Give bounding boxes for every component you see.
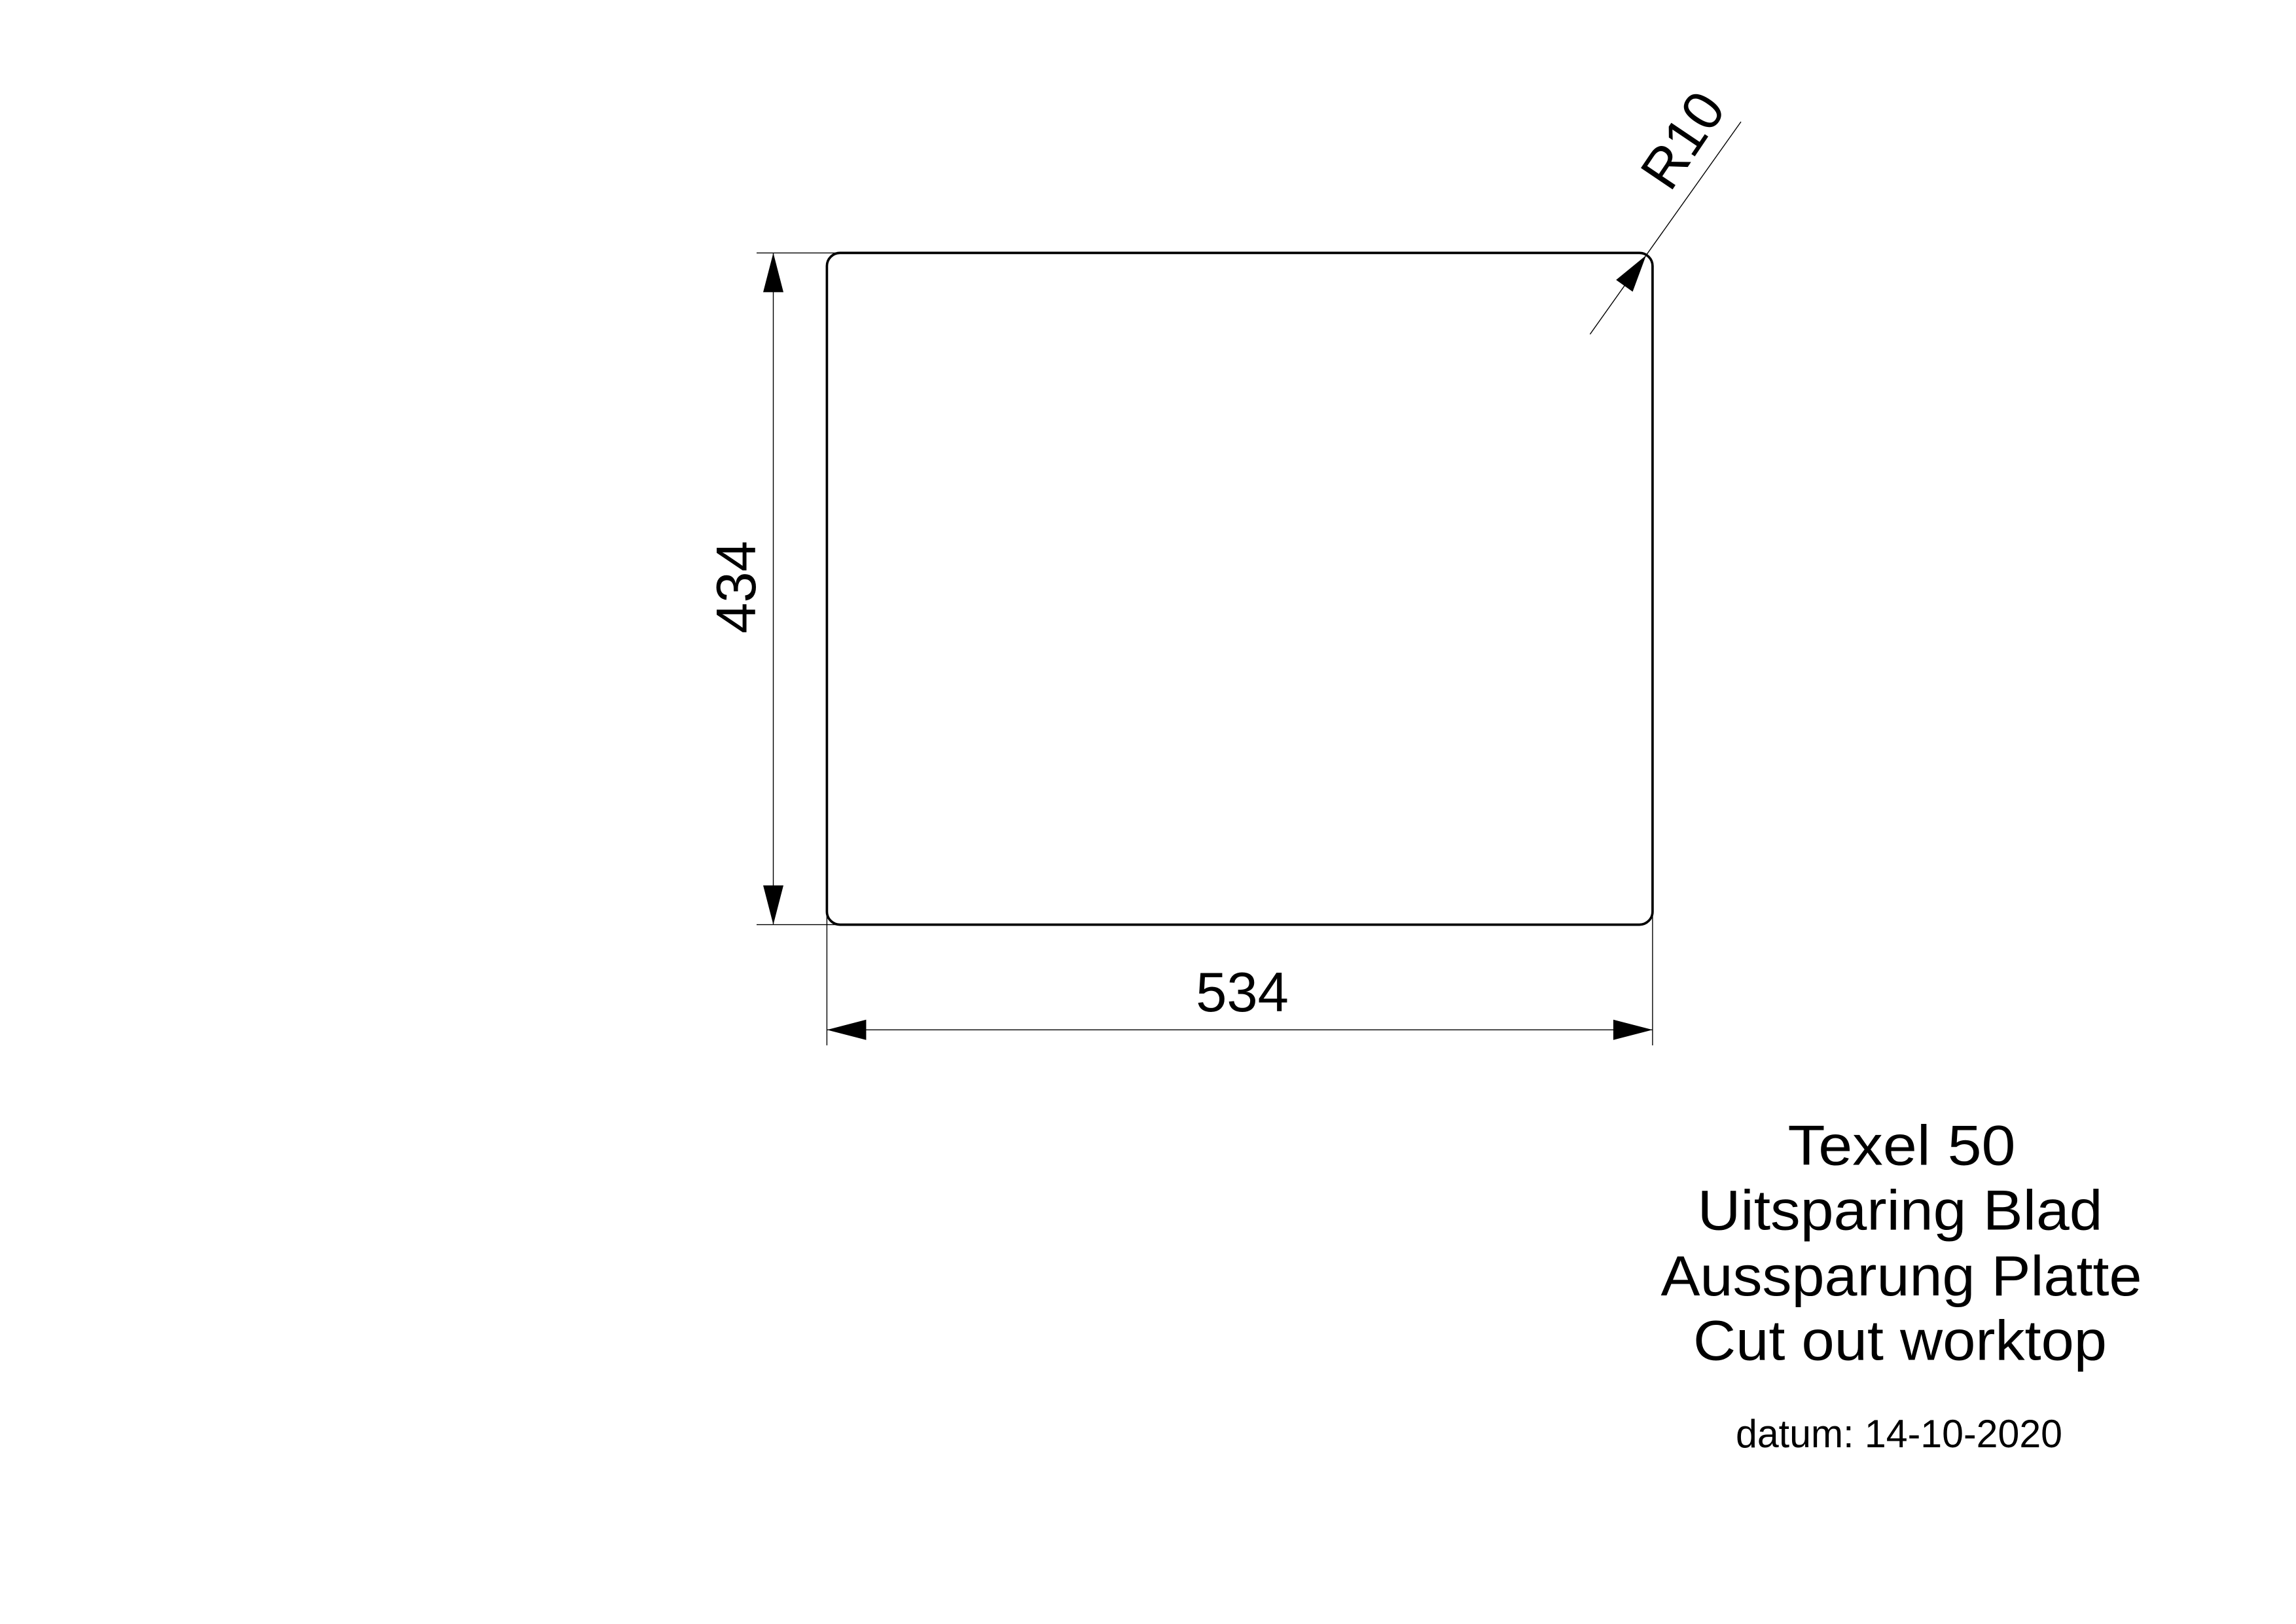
svg-text:Uitsparing Blad: Uitsparing Blad [1698,1180,2103,1242]
svg-text:534: 534 [1196,962,1289,1024]
svg-text:434: 434 [706,541,768,634]
svg-text:Aussparung Platte: Aussparung Platte [1661,1245,2142,1308]
svg-text:datum: 14-10-2020: datum: 14-10-2020 [1736,1412,2062,1456]
svg-text:Texel 50: Texel 50 [1788,1115,2016,1178]
svg-text:Cut out worktop: Cut out worktop [1693,1310,2107,1373]
